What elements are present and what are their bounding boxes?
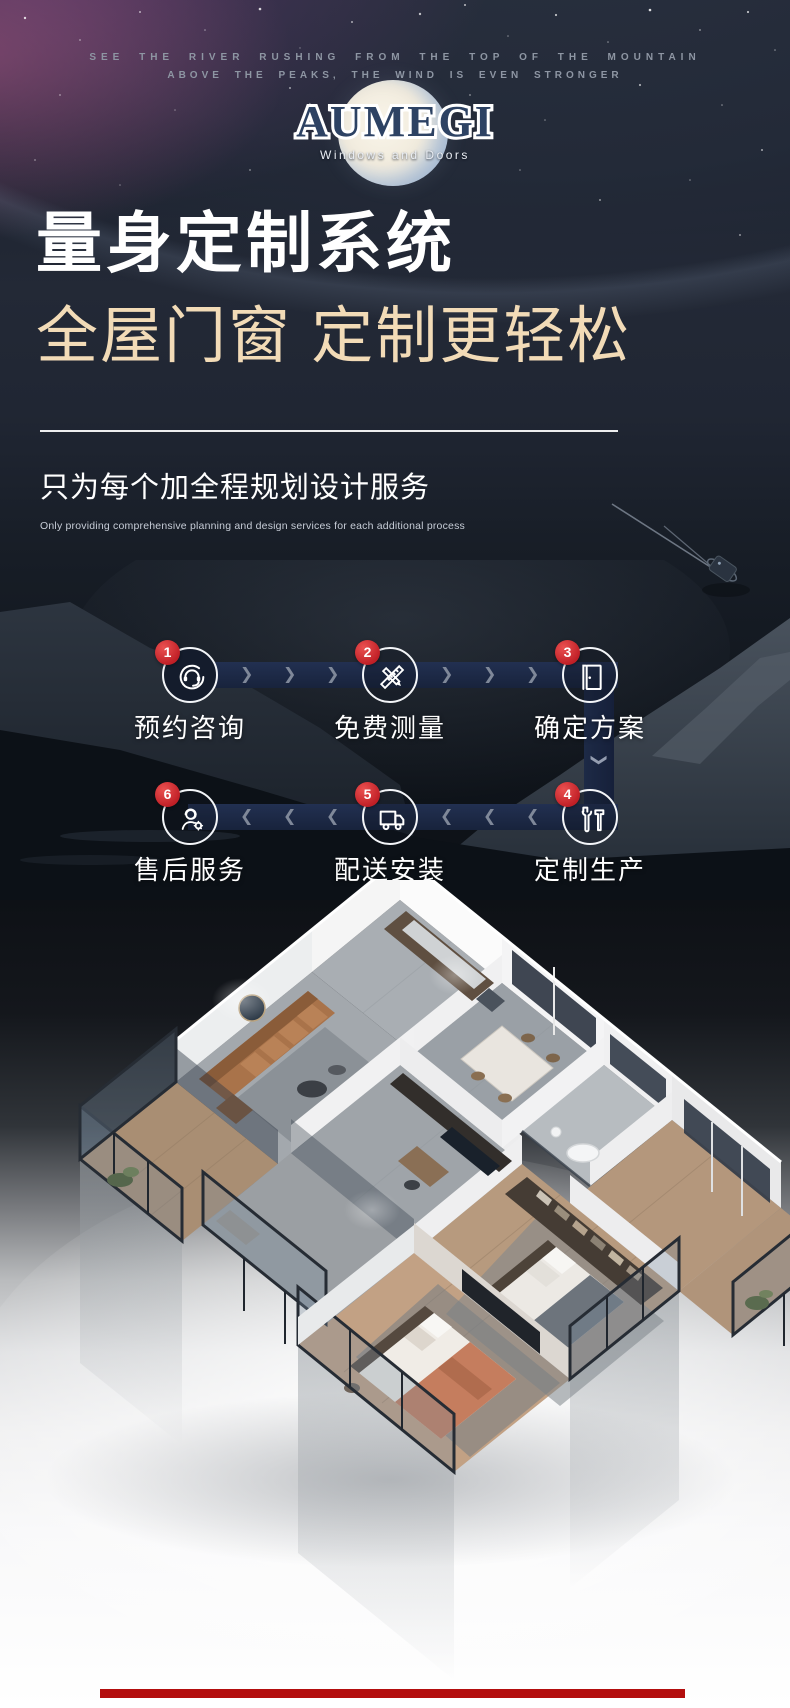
chevron-right-icon bbox=[283, 667, 296, 683]
hero-tagline-line1: SEE THE RIVER RUSHING FROM THE TOP OF TH… bbox=[0, 52, 790, 63]
chevron-left-icon bbox=[326, 809, 339, 825]
svg-text:AUMEGI: AUMEGI bbox=[296, 97, 494, 146]
chevron-right-icon bbox=[440, 667, 453, 683]
door-icon bbox=[576, 661, 608, 693]
satellite-illustration bbox=[600, 498, 780, 608]
headline-secondary: 全屋门窗 定制更轻松 bbox=[36, 300, 631, 374]
chevron-left-icon bbox=[440, 809, 453, 825]
headset-icon bbox=[176, 661, 208, 693]
chevron-right-icon bbox=[326, 667, 339, 683]
subtitle-chinese: 只为每个加全程规划设计服务 bbox=[40, 464, 430, 506]
headline-primary: 量身定制系统 bbox=[36, 206, 456, 282]
step-circle-2: 2 bbox=[362, 647, 418, 703]
aftersale-service-icon bbox=[176, 803, 208, 835]
bottom-red-bar bbox=[100, 1689, 685, 1698]
divider-line bbox=[40, 430, 618, 432]
step-circle-5: 5 bbox=[362, 789, 418, 845]
step-circle-3: 3 bbox=[562, 647, 618, 703]
truck-icon bbox=[376, 803, 408, 835]
step-circle-4: 4 bbox=[562, 789, 618, 845]
chevron-right-icon bbox=[483, 667, 496, 683]
chevron-down-icon bbox=[591, 753, 607, 766]
brand-logo: AUMEGI bbox=[195, 92, 595, 152]
chevron-left-icon bbox=[483, 809, 496, 825]
step-circle-1: 1 bbox=[162, 647, 218, 703]
chevron-left-icon bbox=[283, 809, 296, 825]
chevron-left-icon bbox=[240, 809, 253, 825]
logo-subtext: Windows and Doors bbox=[0, 148, 790, 162]
tools-icon bbox=[576, 803, 608, 835]
chevron-right-icon bbox=[240, 667, 253, 683]
chevron-left-icon bbox=[526, 809, 539, 825]
apartment-render bbox=[0, 880, 790, 1708]
chevron-right-icon bbox=[526, 667, 539, 683]
step-circle-6: 6 bbox=[162, 789, 218, 845]
step-label: 确定方案 bbox=[470, 708, 710, 745]
subtitle-english: Only providing comprehensive planning an… bbox=[40, 520, 465, 532]
poster-root: SEE THE RIVER RUSHING FROM THE TOP OF TH… bbox=[0, 0, 790, 1708]
pencil-ruler-icon bbox=[376, 661, 408, 693]
